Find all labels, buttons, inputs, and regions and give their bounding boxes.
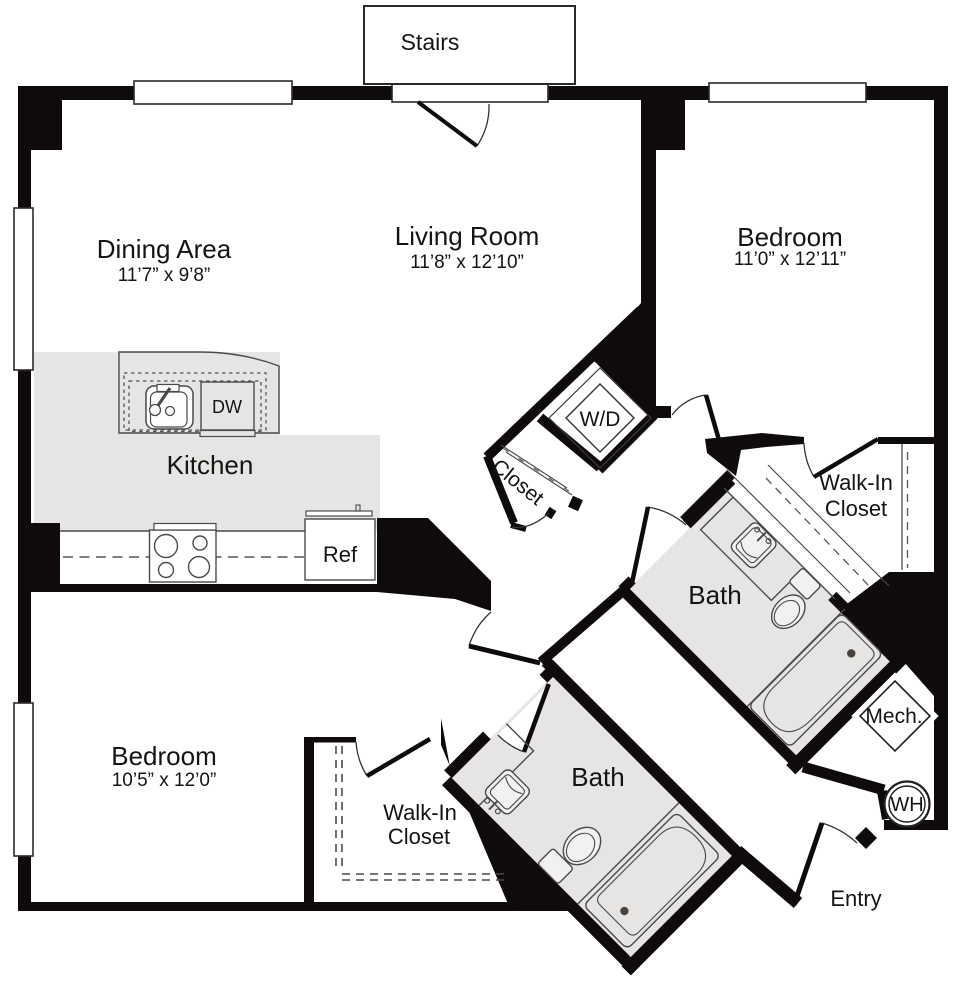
svg-text:DW: DW bbox=[212, 397, 242, 417]
svg-text:11’7” x 9’8”: 11’7” x 9’8” bbox=[118, 265, 211, 286]
svg-text:Bath: Bath bbox=[688, 580, 742, 610]
svg-text:Walk-In: Walk-In bbox=[383, 800, 457, 825]
svg-text:Walk-In: Walk-In bbox=[819, 470, 893, 495]
svg-text:Kitchen: Kitchen bbox=[167, 450, 254, 480]
svg-text:Bedroom: Bedroom bbox=[737, 222, 843, 252]
svg-text:Bedroom: Bedroom bbox=[111, 741, 217, 771]
svg-text:Dining Area: Dining Area bbox=[97, 234, 232, 264]
svg-text:Closet: Closet bbox=[388, 824, 450, 849]
svg-text:10’5” x 12’0”: 10’5” x 12’0” bbox=[112, 770, 217, 791]
svg-text:Stairs: Stairs bbox=[401, 29, 460, 55]
svg-text:11’0” x 12’11”: 11’0” x 12’11” bbox=[734, 249, 846, 270]
svg-text:Closet: Closet bbox=[825, 496, 887, 521]
svg-text:Mech.: Mech. bbox=[865, 705, 922, 728]
svg-text:Living Room: Living Room bbox=[395, 221, 540, 251]
svg-text:W/D: W/D bbox=[580, 408, 621, 431]
svg-text:Entry: Entry bbox=[830, 886, 881, 911]
svg-text:WH: WH bbox=[890, 794, 923, 816]
svg-text:Ref: Ref bbox=[323, 542, 358, 567]
svg-text:11’8” x 12’10”: 11’8” x 12’10” bbox=[410, 252, 524, 273]
svg-text:Bath: Bath bbox=[571, 762, 625, 792]
